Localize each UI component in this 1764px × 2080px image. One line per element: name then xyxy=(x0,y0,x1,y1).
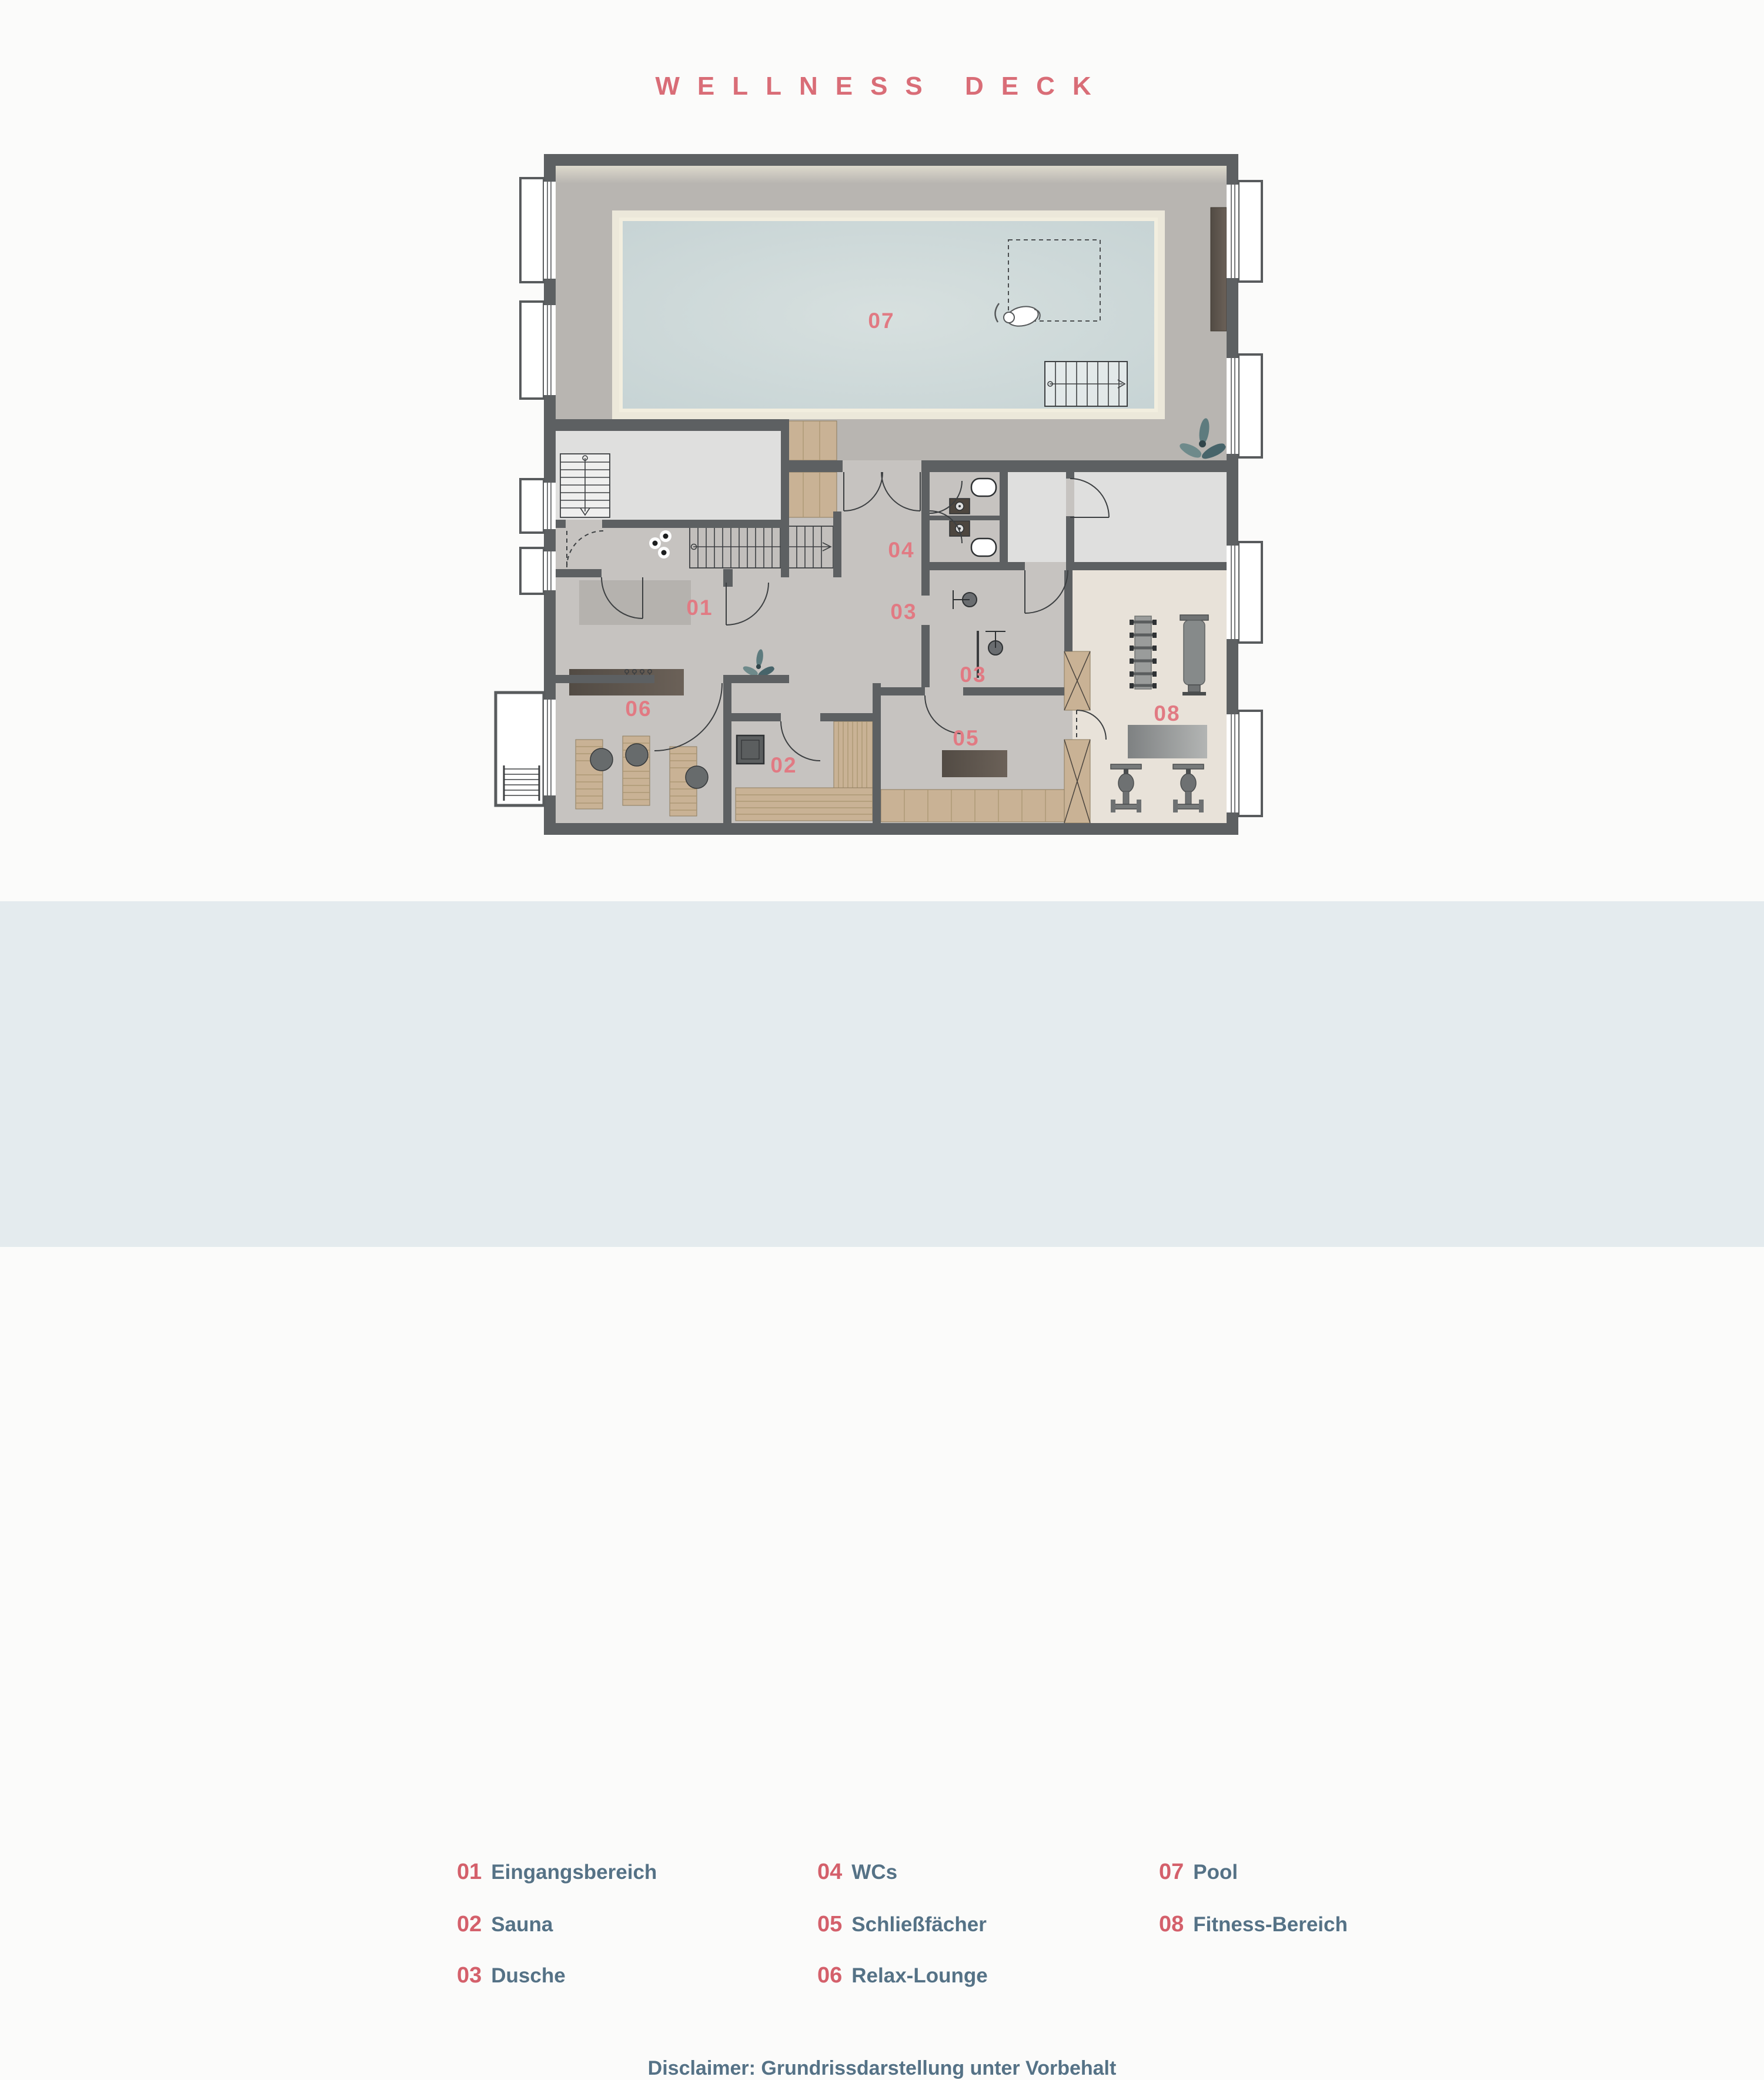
pool-stairs-icon xyxy=(1045,362,1127,406)
floor-plan-drawing: 01 02 03 03 04 05 06 07 08 xyxy=(490,152,1289,837)
room-label-04: 04 xyxy=(888,538,914,562)
legend-item-04: 04 WCs xyxy=(817,1860,897,1885)
balcony xyxy=(496,693,556,805)
legend-number: 08 xyxy=(1159,1912,1184,1937)
legend-item-07: 07 Pool xyxy=(1159,1860,1238,1885)
room-label-07: 07 xyxy=(868,309,894,333)
toilet-icon xyxy=(971,539,996,556)
doormat xyxy=(787,472,837,517)
locker-room-bench xyxy=(942,750,1007,777)
room-label-03b: 03 xyxy=(960,663,986,687)
legend-item-06: 06 Relax-Lounge xyxy=(817,1963,988,1988)
legend-label: Sauna xyxy=(491,1913,553,1937)
legend-number: 04 xyxy=(817,1860,842,1885)
lounger-pillow xyxy=(590,748,613,771)
sink-icon xyxy=(950,499,970,514)
anteroom-floor xyxy=(1008,472,1066,562)
page-title: WELLNESS DECK xyxy=(0,72,1764,101)
legend: 01 Eingangsbereich 02 Sauna 03 Dusche 04… xyxy=(0,901,1764,1247)
legend-number: 07 xyxy=(1159,1860,1184,1885)
floors xyxy=(556,166,1227,823)
sauna-bench xyxy=(736,788,873,821)
legend-label: Schließfächer xyxy=(851,1913,987,1937)
window xyxy=(1227,711,1262,816)
corridor-stairs-icon xyxy=(690,526,833,568)
stairwell-stairs-icon xyxy=(560,454,610,517)
deck-glow xyxy=(556,166,1227,183)
window xyxy=(520,302,556,399)
window xyxy=(520,178,556,282)
lounger xyxy=(623,736,650,805)
legend-label: Pool xyxy=(1193,1861,1238,1884)
room-label-03: 03 xyxy=(890,600,917,624)
disclaimer-text: Disclaimer: Grundrissdarstellung unter V… xyxy=(0,2057,1764,2080)
deck-cabinet xyxy=(1211,208,1227,331)
legend-number: 01 xyxy=(457,1860,482,1885)
legend-number: 05 xyxy=(817,1912,842,1937)
toilet-icon xyxy=(971,479,996,496)
legend-item-03: 03 Dusche xyxy=(457,1963,566,1988)
legend-label: Eingangsbereich xyxy=(491,1861,657,1884)
legend-label: Fitness-Bereich xyxy=(1193,1913,1348,1937)
sauna-heater-icon xyxy=(737,735,764,764)
page: { "title": "WELLNESS DECK", "legend": { … xyxy=(0,0,1764,1247)
window xyxy=(520,479,556,533)
window xyxy=(520,548,556,594)
gym-mat xyxy=(1128,725,1207,758)
window xyxy=(1227,181,1262,282)
locker xyxy=(1064,651,1090,710)
pool-deck-right xyxy=(789,419,1227,460)
legend-item-05: 05 Schließfächer xyxy=(817,1912,987,1937)
sink-icon xyxy=(950,521,970,536)
legend-number: 02 xyxy=(457,1912,482,1937)
room-label-05: 05 xyxy=(953,726,979,750)
fitness-floor xyxy=(1073,570,1227,823)
floor-plan: 01 02 03 03 04 05 06 07 08 xyxy=(490,152,1289,837)
legend-item-08: 08 Fitness-Bereich xyxy=(1159,1912,1348,1937)
room-label-01: 01 xyxy=(686,596,713,620)
room-label-02: 02 xyxy=(770,753,797,777)
legend-label: WCs xyxy=(851,1861,897,1884)
lounger-pillow xyxy=(626,744,648,766)
legend-label: Dusche xyxy=(491,1964,565,1988)
room-label-08: 08 xyxy=(1154,701,1180,725)
doormat xyxy=(787,421,837,460)
legend-item-02: 02 Sauna xyxy=(457,1912,553,1937)
legend-item-01: 01 Eingangsbereich xyxy=(457,1860,657,1885)
locker xyxy=(1064,740,1090,823)
legend-label: Relax-Lounge xyxy=(851,1964,987,1988)
legend-number: 06 xyxy=(817,1963,842,1988)
sauna-bench xyxy=(834,721,873,790)
legend-number: 03 xyxy=(457,1963,482,1988)
wood-floor-strip xyxy=(881,790,1064,822)
lounger-pillow xyxy=(686,766,708,788)
window xyxy=(1227,542,1262,643)
room-label-06: 06 xyxy=(625,697,652,721)
window xyxy=(1227,355,1262,457)
